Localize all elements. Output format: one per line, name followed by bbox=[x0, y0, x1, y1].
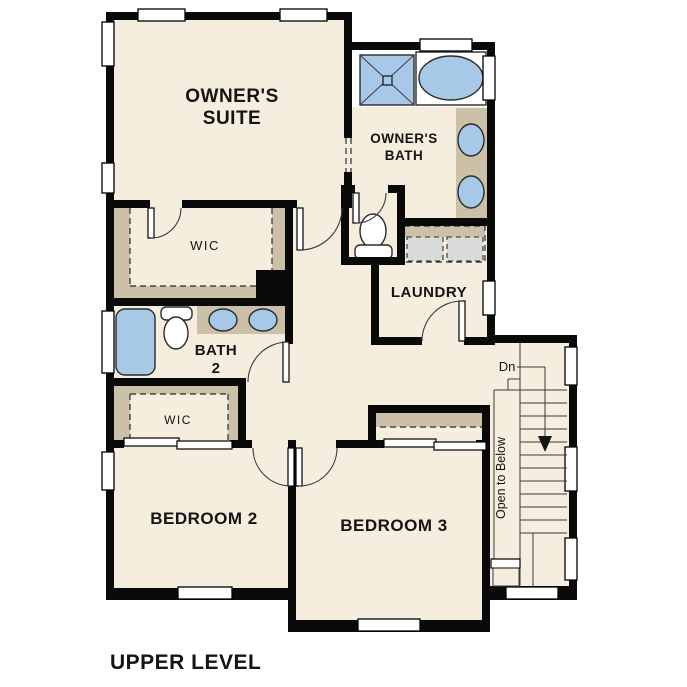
room-bedroom2: BEDROOM 2 bbox=[150, 509, 257, 528]
room-label: BATH bbox=[385, 148, 424, 163]
shower-fixture bbox=[360, 55, 414, 105]
room-label: SUITE bbox=[203, 108, 261, 129]
room-label: 2 bbox=[212, 360, 221, 377]
room-label: WIC bbox=[190, 238, 220, 253]
room-laundry: LAUNDRY bbox=[391, 284, 467, 301]
page-title: UPPER LEVEL bbox=[110, 651, 261, 674]
room-owners-wic: WIC bbox=[190, 238, 220, 253]
room-label: WIC bbox=[164, 413, 192, 427]
room-bedroom3: BEDROOM 3 bbox=[340, 516, 447, 535]
stair-dn-label: Dn bbox=[499, 359, 516, 374]
open-to-below-label: Open to Below bbox=[494, 436, 508, 519]
bath2-tub-fixture bbox=[116, 309, 155, 375]
room-bedroom2-wic: WIC bbox=[164, 413, 192, 427]
room-label: BEDROOM 2 bbox=[150, 509, 257, 528]
room-label: BEDROOM 3 bbox=[340, 516, 447, 535]
room-label: OWNER'S bbox=[370, 131, 437, 146]
soaking-tub-fixture bbox=[416, 52, 486, 105]
floor-plan: Dn Open to Below OWNER'S SUITE OWNER'S B… bbox=[0, 0, 687, 687]
room-label: LAUNDRY bbox=[391, 284, 467, 301]
room-label: OWNER'S bbox=[185, 86, 279, 107]
floor-plan-page: Dn Open to Below OWNER'S SUITE OWNER'S B… bbox=[0, 0, 687, 687]
room-label: BATH bbox=[195, 342, 238, 359]
